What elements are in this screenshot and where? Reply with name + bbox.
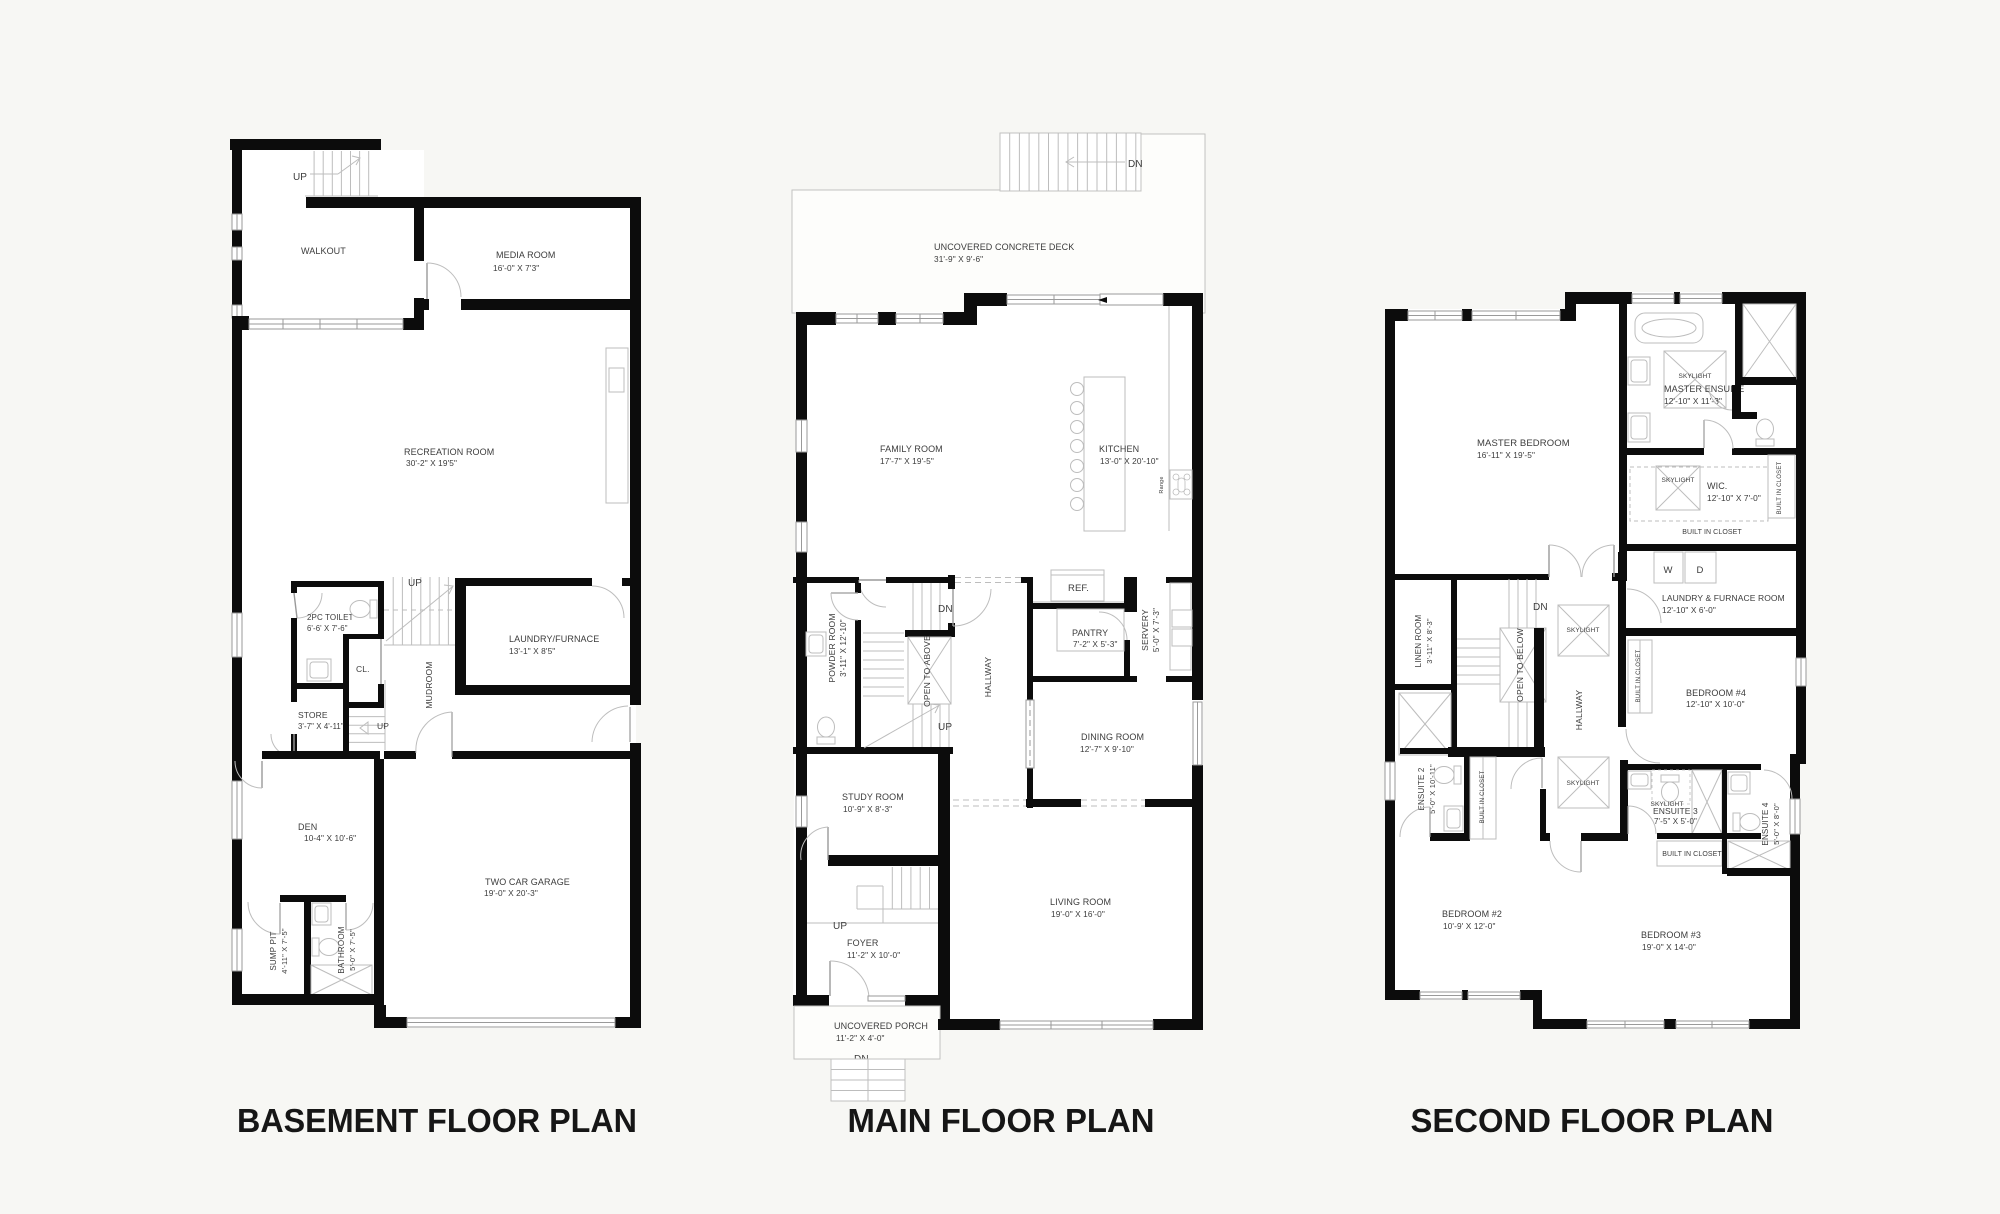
svg-text:6'-6' X 7'-6": 6'-6' X 7'-6" bbox=[307, 624, 348, 633]
svg-text:7'-5" X 5'-0": 7'-5" X 5'-0" bbox=[1654, 817, 1697, 826]
svg-text:ENSUITE 4: ENSUITE 4 bbox=[1761, 802, 1770, 845]
svg-text:WALKOUT: WALKOUT bbox=[301, 246, 346, 256]
svg-text:BUILT IN CLOSET: BUILT IN CLOSET bbox=[1662, 851, 1722, 858]
svg-text:30'-2" X 19'5": 30'-2" X 19'5" bbox=[406, 458, 457, 468]
svg-text:12'-10" X 6'-0": 12'-10" X 6'-0" bbox=[1662, 605, 1716, 615]
svg-text:DN: DN bbox=[1533, 602, 1548, 613]
svg-text:CL.: CL. bbox=[356, 664, 370, 674]
svg-text:2PC TOILET: 2PC TOILET bbox=[307, 613, 354, 622]
svg-text:POWDER ROOM: POWDER ROOM bbox=[827, 613, 837, 682]
svg-text:UP: UP bbox=[293, 172, 307, 183]
svg-text:D: D bbox=[1697, 565, 1704, 576]
svg-text:12'-10" X 7'-0": 12'-10" X 7'-0" bbox=[1707, 493, 1761, 503]
svg-text:11'-2" X 10'-0": 11'-2" X 10'-0" bbox=[847, 950, 900, 960]
svg-text:RECREATION ROOM: RECREATION ROOM bbox=[404, 447, 494, 457]
svg-text:17'-7" X 19'-5": 17'-7" X 19'-5" bbox=[880, 456, 934, 466]
svg-text:10'-9" X 8'-3": 10'-9" X 8'-3" bbox=[843, 804, 892, 814]
svg-text:5'-0" X 8'-0": 5'-0" X 8'-0" bbox=[1772, 803, 1781, 845]
svg-text:HALLWAY: HALLWAY bbox=[983, 657, 993, 698]
svg-text:16'-11" X 19'-5": 16'-11" X 19'-5" bbox=[1477, 450, 1535, 460]
svg-text:STORE: STORE bbox=[298, 710, 328, 720]
svg-text:UP: UP bbox=[833, 921, 847, 932]
svg-text:UP: UP bbox=[377, 721, 389, 731]
svg-text:31'-9" X 9'-6": 31'-9" X 9'-6" bbox=[934, 254, 983, 264]
svg-text:BEDROOM #2: BEDROOM #2 bbox=[1442, 909, 1502, 919]
svg-text:LIVING ROOM: LIVING ROOM bbox=[1050, 897, 1111, 907]
svg-text:10'-9' X 12'-0": 10'-9' X 12'-0" bbox=[1443, 921, 1496, 931]
svg-text:SKYLIGHT: SKYLIGHT bbox=[1567, 780, 1600, 787]
svg-text:ENSUITE 3: ENSUITE 3 bbox=[1653, 806, 1698, 816]
svg-text:3'-11" X 8'-3": 3'-11" X 8'-3" bbox=[1425, 618, 1434, 664]
svg-text:DN: DN bbox=[938, 604, 953, 615]
svg-text:7'-2" X 5'-3": 7'-2" X 5'-3" bbox=[1073, 639, 1118, 649]
svg-text:ENSUITE 2: ENSUITE 2 bbox=[1417, 767, 1426, 810]
svg-text:13'-1" X 8'5": 13'-1" X 8'5" bbox=[509, 646, 555, 656]
svg-text:WIC.: WIC. bbox=[1707, 481, 1727, 491]
svg-text:11'-2" X 4'-0": 11'-2" X 4'-0" bbox=[836, 1033, 885, 1043]
svg-text:OPEN TO BELOW: OPEN TO BELOW bbox=[1515, 628, 1525, 702]
svg-text:UP: UP bbox=[938, 722, 952, 733]
svg-text:SKYLIGHT: SKYLIGHT bbox=[1567, 627, 1600, 634]
svg-text:4'-11" X 7'-5": 4'-11" X 7'-5" bbox=[280, 928, 289, 974]
svg-text:DN: DN bbox=[1128, 159, 1143, 170]
svg-text:FAMILY ROOM: FAMILY ROOM bbox=[880, 444, 943, 454]
svg-text:UNCOVERED CONCRETE DECK: UNCOVERED CONCRETE DECK bbox=[934, 242, 1074, 252]
svg-text:UP: UP bbox=[408, 578, 422, 589]
svg-text:10-4" X 10'-6": 10-4" X 10'-6" bbox=[304, 833, 356, 843]
svg-text:STUDY ROOM: STUDY ROOM bbox=[842, 792, 904, 802]
svg-text:MASTER BEDROOM: MASTER BEDROOM bbox=[1477, 438, 1570, 449]
svg-text:BEDROOM #3: BEDROOM #3 bbox=[1641, 930, 1701, 940]
svg-text:BUILT IN CLOSET: BUILT IN CLOSET bbox=[1777, 461, 1783, 514]
svg-text:LAUNDRY & FURNACE ROOM: LAUNDRY & FURNACE ROOM bbox=[1662, 593, 1785, 603]
svg-text:19'-0" X 14'-0": 19'-0" X 14'-0" bbox=[1642, 942, 1696, 952]
svg-text:12'-10" X 10'-0": 12'-10" X 10'-0" bbox=[1686, 699, 1745, 709]
svg-text:DINING ROOM: DINING ROOM bbox=[1081, 732, 1144, 742]
svg-text:5'-0" X 7'-5": 5'-0" X 7'-5" bbox=[348, 929, 357, 971]
svg-text:MUDROOM: MUDROOM bbox=[424, 661, 434, 708]
svg-text:SKYLIGHT: SKYLIGHT bbox=[1679, 373, 1712, 380]
svg-text:LAUNDRY/FURNACE: LAUNDRY/FURNACE bbox=[509, 634, 599, 644]
svg-text:SUMP PIT: SUMP PIT bbox=[269, 931, 278, 970]
svg-text:KITCHEN: KITCHEN bbox=[1099, 444, 1139, 454]
svg-text:16'-0" X 7'3": 16'-0" X 7'3" bbox=[493, 263, 539, 273]
svg-text:DEN: DEN bbox=[298, 822, 317, 832]
svg-text:13'-0" X 20'-10": 13'-0" X 20'-10" bbox=[1100, 456, 1159, 466]
svg-text:3'-7" X 4'-11": 3'-7" X 4'-11" bbox=[298, 722, 344, 731]
svg-text:FOYER: FOYER bbox=[847, 938, 879, 948]
svg-text:BATHROOM: BATHROOM bbox=[337, 926, 346, 973]
svg-text:SECOND FLOOR PLAN: SECOND FLOOR PLAN bbox=[1411, 1102, 1774, 1139]
svg-text:SKYLIGHT: SKYLIGHT bbox=[1662, 477, 1695, 484]
svg-text:BUILT IN CLOSET: BUILT IN CLOSET bbox=[1480, 770, 1486, 823]
svg-text:19'-0" X 16'-0": 19'-0" X 16'-0" bbox=[1051, 909, 1105, 919]
svg-text:BEDROOM #4: BEDROOM #4 bbox=[1686, 688, 1746, 698]
svg-text:W: W bbox=[1663, 565, 1672, 576]
svg-text:UNCOVERED PORCH: UNCOVERED PORCH bbox=[834, 1021, 928, 1031]
svg-text:REF.: REF. bbox=[1068, 583, 1089, 594]
svg-text:12'-7" X 9'-10": 12'-7" X 9'-10" bbox=[1080, 744, 1134, 754]
svg-text:BUILT IN CLOSET: BUILT IN CLOSET bbox=[1682, 529, 1742, 536]
svg-text:3'-11" X 12'-10": 3'-11" X 12'-10" bbox=[839, 619, 848, 677]
svg-text:PANTRY: PANTRY bbox=[1072, 628, 1108, 638]
svg-text:BUILT IN CLOSET: BUILT IN CLOSET bbox=[1636, 649, 1642, 702]
svg-text:TWO CAR GARAGE: TWO CAR GARAGE bbox=[485, 877, 570, 887]
svg-text:HALLWAY: HALLWAY bbox=[1574, 690, 1584, 731]
svg-text:BASEMENT FLOOR PLAN: BASEMENT FLOOR PLAN bbox=[237, 1102, 637, 1139]
svg-text:OPEN TO ABOVE: OPEN TO ABOVE bbox=[922, 635, 932, 707]
svg-text:MAIN FLOOR PLAN: MAIN FLOOR PLAN bbox=[848, 1102, 1155, 1139]
svg-text:SERVERY: SERVERY bbox=[1140, 609, 1150, 651]
svg-text:MEDIA ROOM: MEDIA ROOM bbox=[496, 250, 556, 260]
svg-text:5'-0" X 7'-3": 5'-0" X 7'-3" bbox=[1152, 608, 1161, 652]
svg-text:LINEN ROOM: LINEN ROOM bbox=[1414, 615, 1423, 668]
svg-text:Range: Range bbox=[1159, 476, 1165, 493]
svg-text:19'-0" X 20'-3": 19'-0" X 20'-3" bbox=[484, 888, 538, 898]
